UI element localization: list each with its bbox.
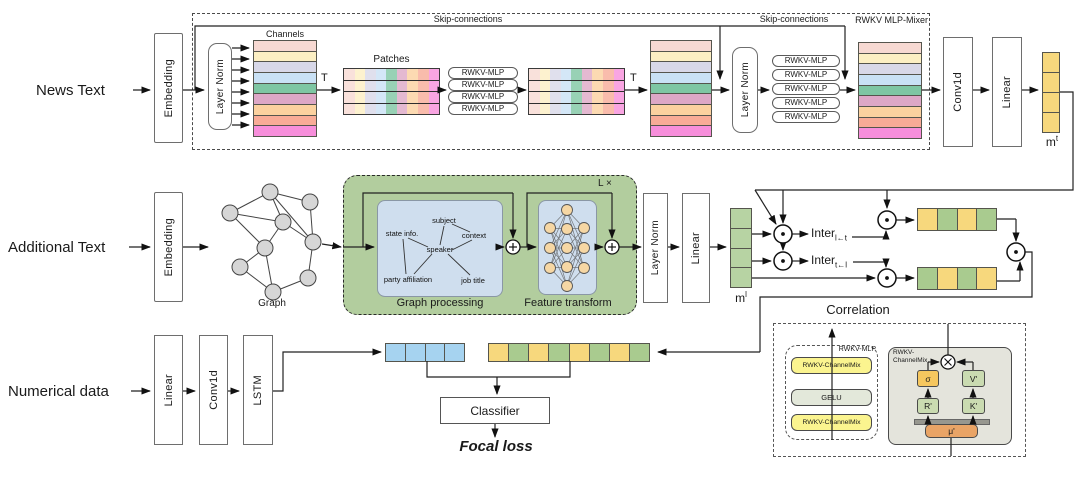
graph-word-speaker: speaker [427,245,454,254]
rwkv-mlp-inset-title: RWKV-MLP [808,346,876,353]
graph-processing-title: Graph processing [377,297,503,309]
connector-lines [0,0,1080,477]
multiply-icon [941,355,955,369]
architecture-diagram: News Text Embedding RWKV MLP-Mixer Skip-… [0,0,1080,477]
hadamard-product-icon [878,269,896,287]
graph-label: Graph [247,298,297,309]
skip-connections-label-1: Skip-connections [418,14,518,24]
hadamard-product-icon [1007,243,1025,261]
add-icon [605,240,619,254]
layer-repeat-label: L × [598,178,612,189]
feature-transform-network [545,205,590,292]
ml-vector-label: ml [726,290,756,305]
graph-word-state-info: state info. [386,229,419,238]
graph-word-subject: subject [432,216,456,225]
skip-connections-label-2: Skip-connections [744,14,844,24]
graph-word-party-affiliation: party affiliation [384,275,432,284]
inter-tl-label: Intert←l [811,253,847,269]
graph-word-job-title: job title [461,276,485,285]
correlation-title: Correlation [813,302,903,317]
hadamard-product-icon [878,211,896,229]
hadamard-product-icon [774,252,792,270]
numerical-data-label: Numerical data [8,383,109,400]
inter-lt-label: Interl←t [811,226,847,242]
transpose-label-1: T [321,72,328,84]
graph-illustration [222,184,321,300]
channels-label: Channels [253,29,317,39]
channelmix-detail-title: RWKV- ChannelMix [893,349,927,365]
news-text-label: News Text [36,82,105,99]
hadamard-product-icon [774,225,792,243]
feature-transform-title: Feature transform [518,297,618,309]
add-icon [506,240,520,254]
mixer-block-title: RWKV MLP-Mixer [838,15,928,25]
patches-label: Patches [343,54,440,65]
transpose-label-2: T [630,72,637,84]
additional-text-label: Additional Text [8,239,105,256]
focal-loss-label: Focal loss [440,438,552,455]
mt-vector-label: mt [1040,134,1064,149]
graph-word-context: context [462,231,486,240]
